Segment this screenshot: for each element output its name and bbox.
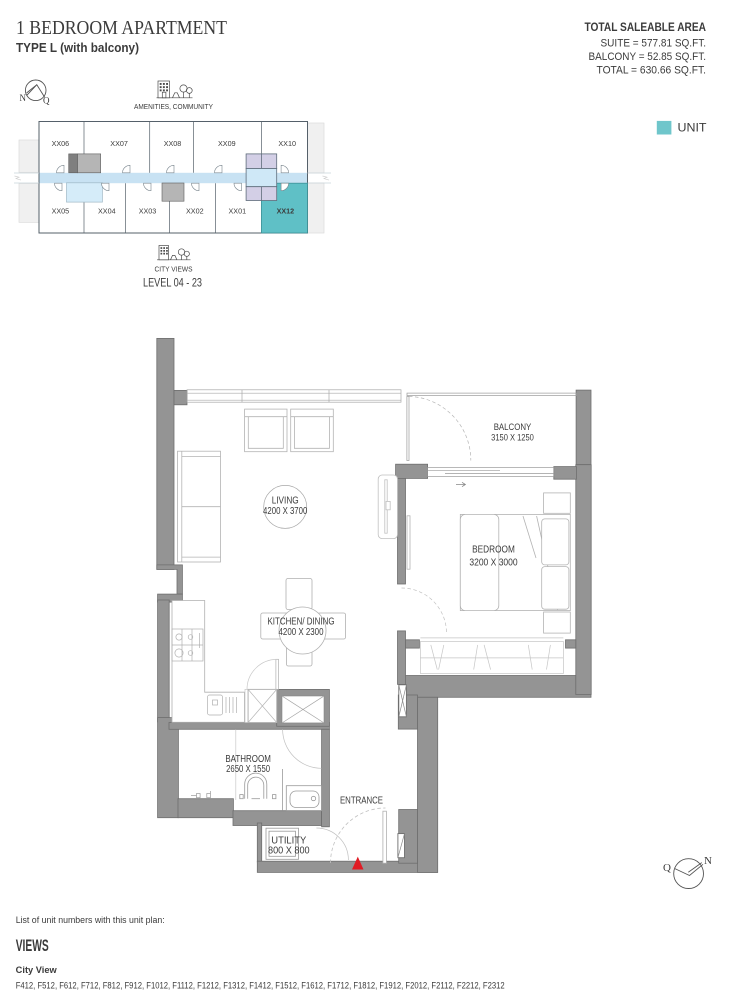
svg-text:VIEWS: VIEWS [16, 937, 49, 955]
svg-text:TYPE L (with balcony): TYPE L (with balcony) [16, 40, 139, 55]
svg-text:BALCONY = 52.85 SQ.FT.: BALCONY = 52.85 SQ.FT. [589, 51, 707, 63]
svg-text:City View: City View [16, 965, 58, 975]
svg-text:Q: Q [663, 862, 671, 874]
svg-text:XX08: XX08 [164, 139, 182, 148]
svg-text:AMENITIES, COMMUNITY: AMENITIES, COMMUNITY [134, 104, 213, 111]
svg-text:SUITE = 577.81 SQ.FT.: SUITE = 577.81 SQ.FT. [601, 38, 707, 50]
svg-text:XX03: XX03 [139, 207, 157, 216]
svg-text:XX01: XX01 [229, 207, 247, 216]
svg-text:F412, F512, F612, F712, F812,: F412, F512, F612, F712, F812, F912, F101… [16, 980, 505, 990]
svg-text:UNIT: UNIT [678, 123, 707, 135]
svg-text:2650 X 1550: 2650 X 1550 [226, 764, 270, 775]
svg-text:XX04: XX04 [98, 207, 116, 216]
svg-text:CITY VIEWS: CITY VIEWS [155, 267, 193, 274]
svg-text:4200 X 3700: 4200 X 3700 [263, 506, 308, 517]
svg-text:TOTAL = 630.66 SQ.FT.: TOTAL = 630.66 SQ.FT. [597, 65, 707, 77]
svg-text:KITCHEN/ DINING: KITCHEN/ DINING [268, 617, 335, 628]
svg-text:BEDROOM: BEDROOM [472, 545, 515, 556]
svg-text:800 X 800: 800 X 800 [268, 846, 310, 857]
svg-text:XX07: XX07 [110, 139, 128, 148]
svg-text:4200 X 2300: 4200 X 2300 [279, 627, 324, 638]
svg-text:1 BEDROOM APARTMENT: 1 BEDROOM APARTMENT [16, 17, 227, 39]
svg-text:XX09: XX09 [218, 139, 236, 148]
svg-text:N: N [704, 855, 712, 867]
svg-text:3200 X 3000: 3200 X 3000 [469, 557, 518, 568]
svg-text:XX12: XX12 [277, 207, 295, 216]
svg-text:XX05: XX05 [52, 207, 70, 216]
svg-text:LIVING: LIVING [272, 495, 299, 506]
svg-text:N: N [20, 93, 27, 103]
svg-text:TOTAL SALEABLE AREA: TOTAL SALEABLE AREA [585, 22, 707, 34]
svg-text:List of unit numbers with this: List of unit numbers with this unit plan… [16, 915, 165, 925]
svg-text:LEVEL 04 - 23: LEVEL 04 - 23 [143, 278, 202, 290]
svg-text:XX02: XX02 [186, 207, 204, 216]
svg-text:XX06: XX06 [52, 139, 70, 148]
svg-text:BALCONY: BALCONY [494, 422, 532, 432]
svg-text:3150 X 1250: 3150 X 1250 [491, 433, 534, 443]
svg-text:XX10: XX10 [278, 139, 296, 148]
svg-text:ENTRANCE: ENTRANCE [340, 795, 383, 806]
svg-text:Q: Q [43, 96, 50, 106]
